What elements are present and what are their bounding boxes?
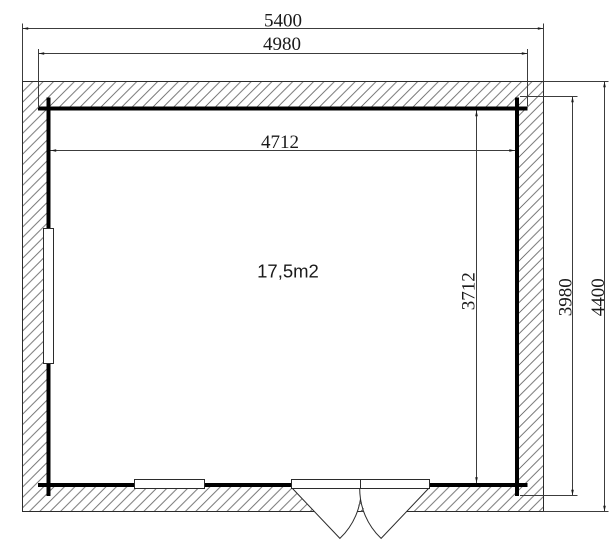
svg-text:3712: 3712: [458, 272, 479, 310]
svg-text:4980: 4980: [263, 34, 301, 55]
svg-text:17,5m2: 17,5m2: [257, 261, 319, 282]
svg-text:4712: 4712: [261, 132, 299, 153]
svg-text:4400: 4400: [588, 278, 609, 316]
svg-text:5400: 5400: [264, 11, 302, 32]
svg-text:3980: 3980: [556, 278, 577, 316]
